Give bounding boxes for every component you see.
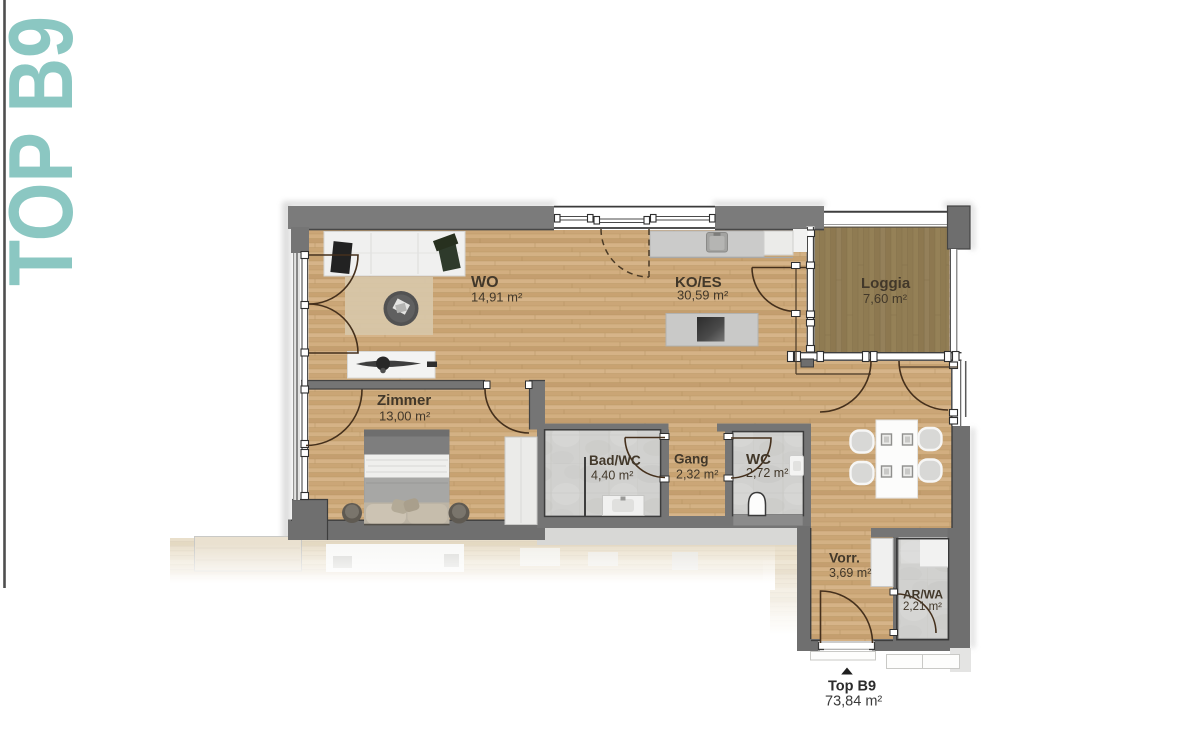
svg-text:73,84 m²: 73,84 m² [825,694,882,710]
svg-text:TOP B9: TOP B9 [0,16,92,286]
svg-text:7,60 m²: 7,60 m² [863,291,908,306]
svg-text:13,00 m²: 13,00 m² [379,409,431,424]
svg-text:Vorr.: Vorr. [829,550,860,566]
svg-text:AR/WA: AR/WA [903,588,943,602]
svg-text:2,21 m²: 2,21 m² [903,601,942,613]
svg-text:Bad/WC: Bad/WC [589,453,641,468]
svg-text:3,69 m²: 3,69 m² [829,566,871,580]
svg-text:30,59 m²: 30,59 m² [677,288,729,303]
svg-text:14,91 m²: 14,91 m² [471,290,523,305]
svg-text:Loggia: Loggia [861,275,911,292]
svg-text:2,72 m²: 2,72 m² [746,466,788,480]
svg-text:Gang: Gang [674,452,709,467]
svg-text:4,40 m²: 4,40 m² [591,469,633,483]
svg-text:Top B9: Top B9 [828,679,876,695]
svg-text:2,32 m²: 2,32 m² [676,468,718,482]
svg-text:Zimmer: Zimmer [377,392,431,409]
svg-text:WO: WO [471,274,499,291]
